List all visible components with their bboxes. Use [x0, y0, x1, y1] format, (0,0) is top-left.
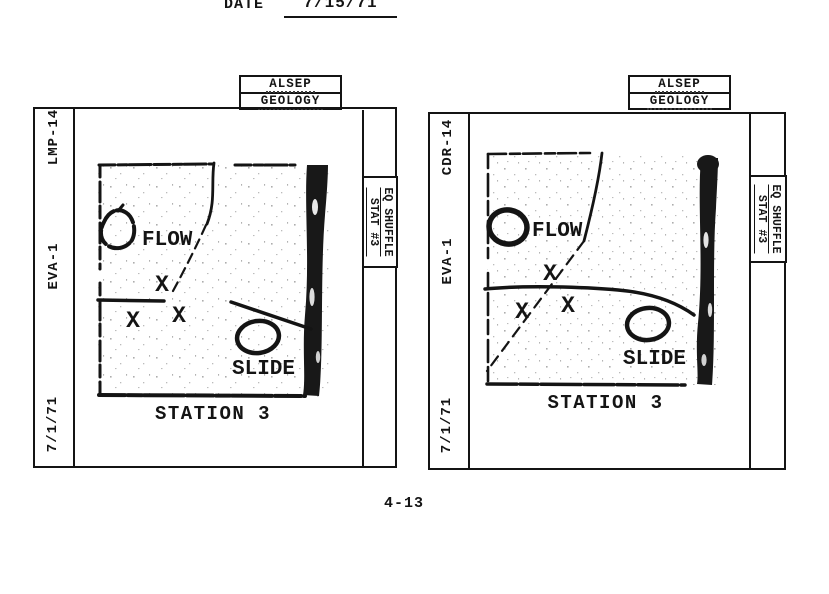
right-panel-date-label: 7/1/71	[439, 397, 455, 453]
page-number: 4-13	[354, 495, 454, 512]
map-border-bottom	[487, 384, 685, 385]
side-tab-eq-shuffle: EQ SHUFFLE	[768, 184, 782, 253]
tab-alsep-row: ALSEP	[241, 77, 340, 94]
right-panel-top-tab: ALSEP GEOLOGY	[628, 75, 731, 110]
ridge-gap	[708, 303, 712, 317]
map-border-bottom	[99, 395, 305, 396]
tab-alsep-label: ALSEP	[655, 77, 704, 93]
traverse-line-west	[98, 300, 164, 301]
left-panel-top-tab: ALSEP GEOLOGY	[239, 75, 342, 110]
right-panel-side-tab-text: EQ SHUFFLE STAT #3	[754, 184, 782, 253]
slide-label: SLIDE	[623, 348, 686, 371]
ridge-gap	[316, 351, 320, 363]
map-border-top	[99, 164, 295, 165]
ridge-top-blob	[697, 155, 719, 173]
sample-x-mark-2: X	[561, 293, 575, 319]
sample-x-mark-2: X	[172, 303, 186, 329]
ridge-gap	[309, 288, 314, 306]
ridge-gap	[701, 354, 706, 366]
tab-geology-row: GEOLOGY	[630, 94, 729, 109]
side-tab-eq-shuffle: EQ SHUFFLE	[380, 187, 394, 256]
map-terrain-texture	[98, 163, 330, 398]
left-panel-side-tab: EQ SHUFFLE STAT #3	[362, 176, 398, 268]
slide-label: SLIDE	[232, 358, 295, 381]
ridge-gap	[312, 199, 318, 215]
date-label: DATE	[224, 0, 264, 13]
left-panel-eva-label: EVA-1	[46, 242, 62, 289]
right-map-caption: STATION 3	[528, 392, 683, 414]
flow-label: FLOW	[142, 229, 193, 252]
tab-geology-label: GEOLOGY	[647, 94, 713, 110]
left-panel-date-label: 7/1/71	[45, 396, 61, 452]
sample-x-mark-3: X	[515, 299, 529, 325]
right-station-map: FLOW X X X SLIDE	[480, 148, 725, 393]
tab-alsep-row: ALSEP	[630, 77, 729, 94]
flow-label: FLOW	[532, 220, 583, 243]
left-station-map: FLOW X X X SLIDE	[85, 145, 350, 410]
tab-alsep-label: ALSEP	[266, 77, 315, 93]
left-panel-right-strip-divider	[362, 110, 364, 466]
map-border-top	[488, 153, 590, 154]
right-panel-left-strip-divider	[468, 112, 470, 470]
left-panel-crew-label: LMP-14	[46, 109, 62, 165]
right-panel-eva-label: EVA-1	[440, 237, 456, 284]
right-panel-side-tab: EQ SHUFFLE STAT #3	[749, 175, 787, 263]
side-tab-stat3: STAT #3	[366, 187, 380, 256]
sample-x-mark-1: X	[155, 272, 169, 298]
right-panel-right-strip-divider	[749, 114, 751, 468]
side-tab-stat3: STAT #3	[754, 184, 768, 253]
sample-x-mark-3: X	[126, 308, 140, 334]
date-value: 7/15/71	[284, 0, 397, 18]
left-panel-left-strip-divider	[73, 107, 75, 468]
left-map-caption: STATION 3	[138, 403, 288, 425]
sample-x-mark-1: X	[543, 261, 557, 287]
scanned-checklist-page: DATE 7/15/71 ALSEP GEOLOGY LMP-14 EVA-1 …	[0, 0, 829, 594]
left-panel-side-tab-text: EQ SHUFFLE STAT #3	[366, 187, 394, 256]
right-panel-crew-label: CDR-14	[440, 119, 456, 175]
ridge-gap	[703, 232, 708, 248]
